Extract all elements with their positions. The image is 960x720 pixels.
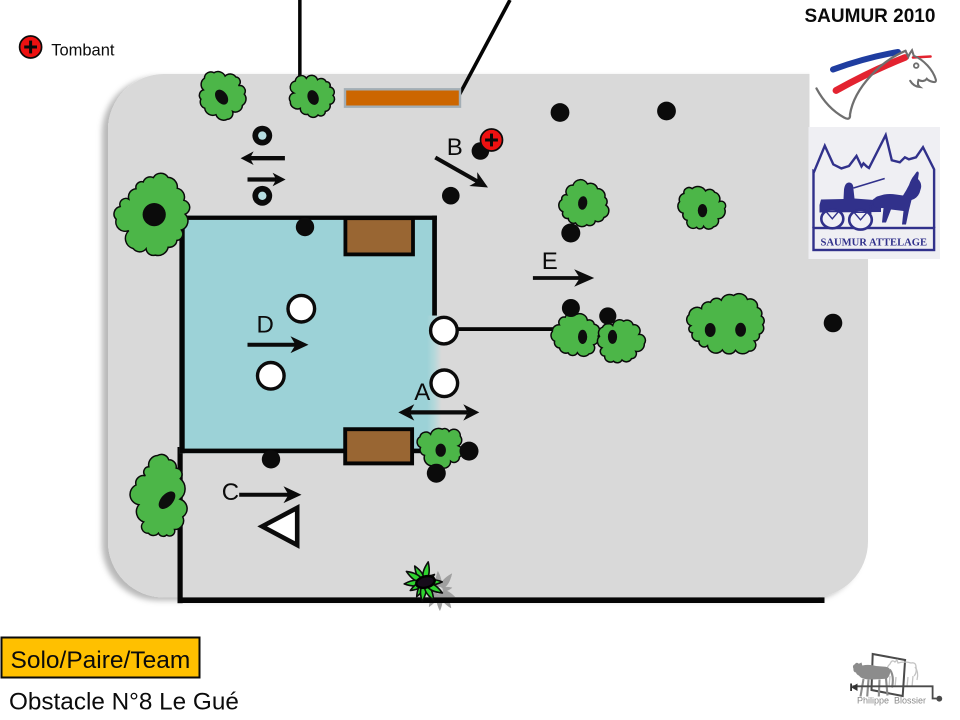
svg-text:Solo/Paire/Team: Solo/Paire/Team [11, 647, 191, 674]
svg-text:E: E [542, 248, 558, 275]
svg-text:Tombant: Tombant [51, 42, 115, 60]
svg-text:SAUMUR ATTELAGE: SAUMUR ATTELAGE [820, 238, 927, 249]
svg-text:A: A [414, 379, 430, 406]
svg-text:SAUMUR 2010: SAUMUR 2010 [805, 6, 936, 27]
svg-text:Obstacle N°8 Le Gué: Obstacle N°8 Le Gué [9, 688, 239, 715]
svg-text:Philippe Blossier: Philippe Blossier [857, 696, 926, 706]
svg-text:C: C [222, 479, 239, 506]
svg-text:D: D [257, 312, 274, 339]
svg-text:B: B [447, 134, 463, 161]
